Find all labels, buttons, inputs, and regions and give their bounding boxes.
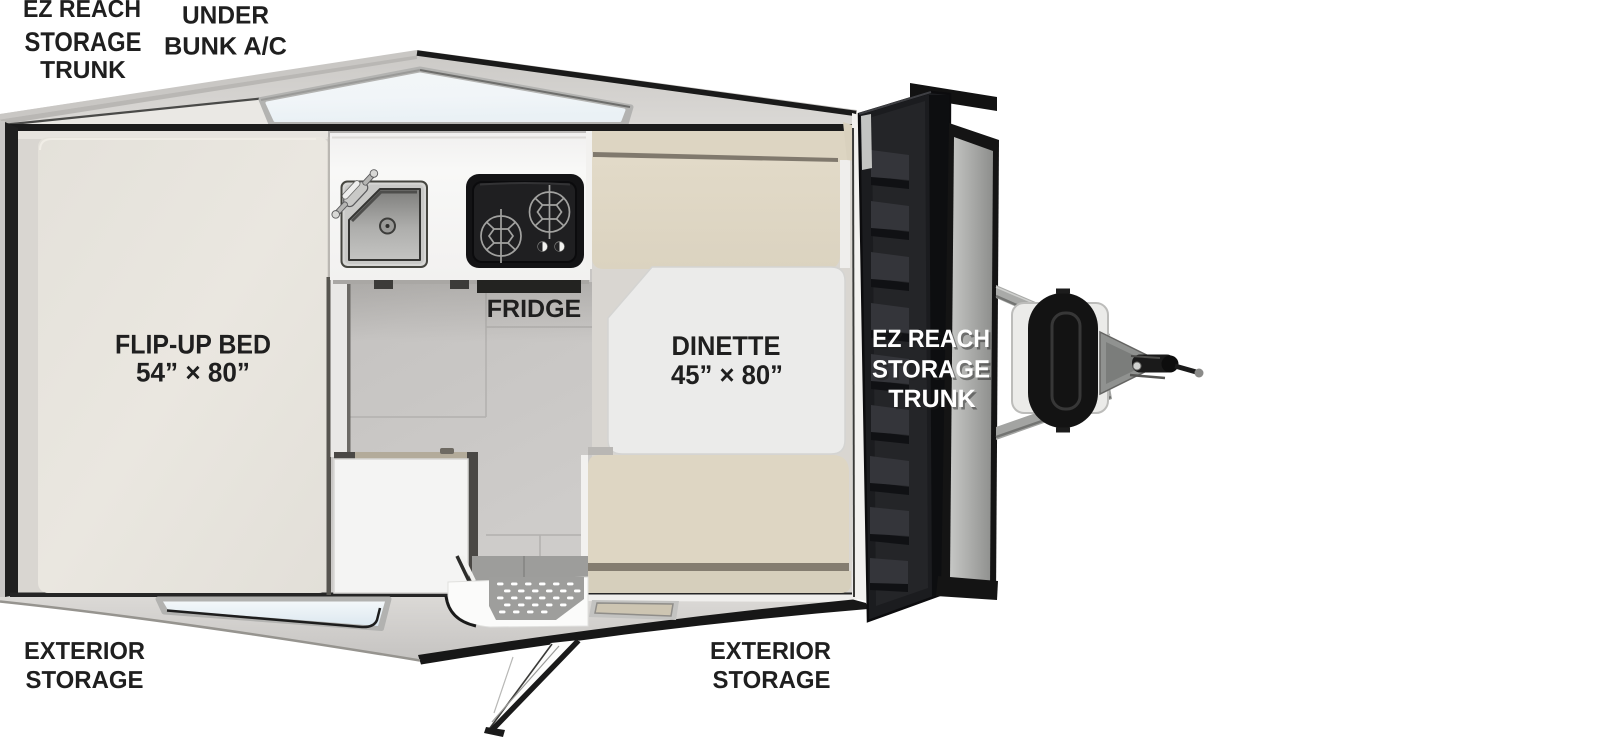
svg-text:EXTERIOR: EXTERIOR xyxy=(710,638,831,665)
svg-text:STORAGE: STORAGE xyxy=(25,27,142,57)
svg-text:STORAGE: STORAGE xyxy=(713,667,831,694)
svg-text:TRUNK: TRUNK xyxy=(40,57,126,84)
svg-text:FRIDGE: FRIDGE xyxy=(487,295,581,323)
svg-text:EZ REACH: EZ REACH xyxy=(23,0,141,23)
svg-text:STORAGE: STORAGE xyxy=(872,356,990,384)
svg-text:BUNK A/C: BUNK A/C xyxy=(164,33,287,61)
svg-text:EXTERIOR: EXTERIOR xyxy=(24,638,145,665)
svg-text:DINETTE: DINETTE xyxy=(672,331,781,361)
svg-text:TRUNK: TRUNK xyxy=(888,385,976,413)
svg-text:FLIP-UP BED: FLIP-UP BED xyxy=(115,330,271,360)
svg-text:54” × 80”: 54” × 80” xyxy=(136,358,250,388)
svg-text:45” × 80”: 45” × 80” xyxy=(671,360,783,390)
svg-text:STORAGE: STORAGE xyxy=(26,667,144,694)
svg-text:EZ REACH: EZ REACH xyxy=(872,325,990,353)
svg-text:UNDER: UNDER xyxy=(182,2,269,30)
